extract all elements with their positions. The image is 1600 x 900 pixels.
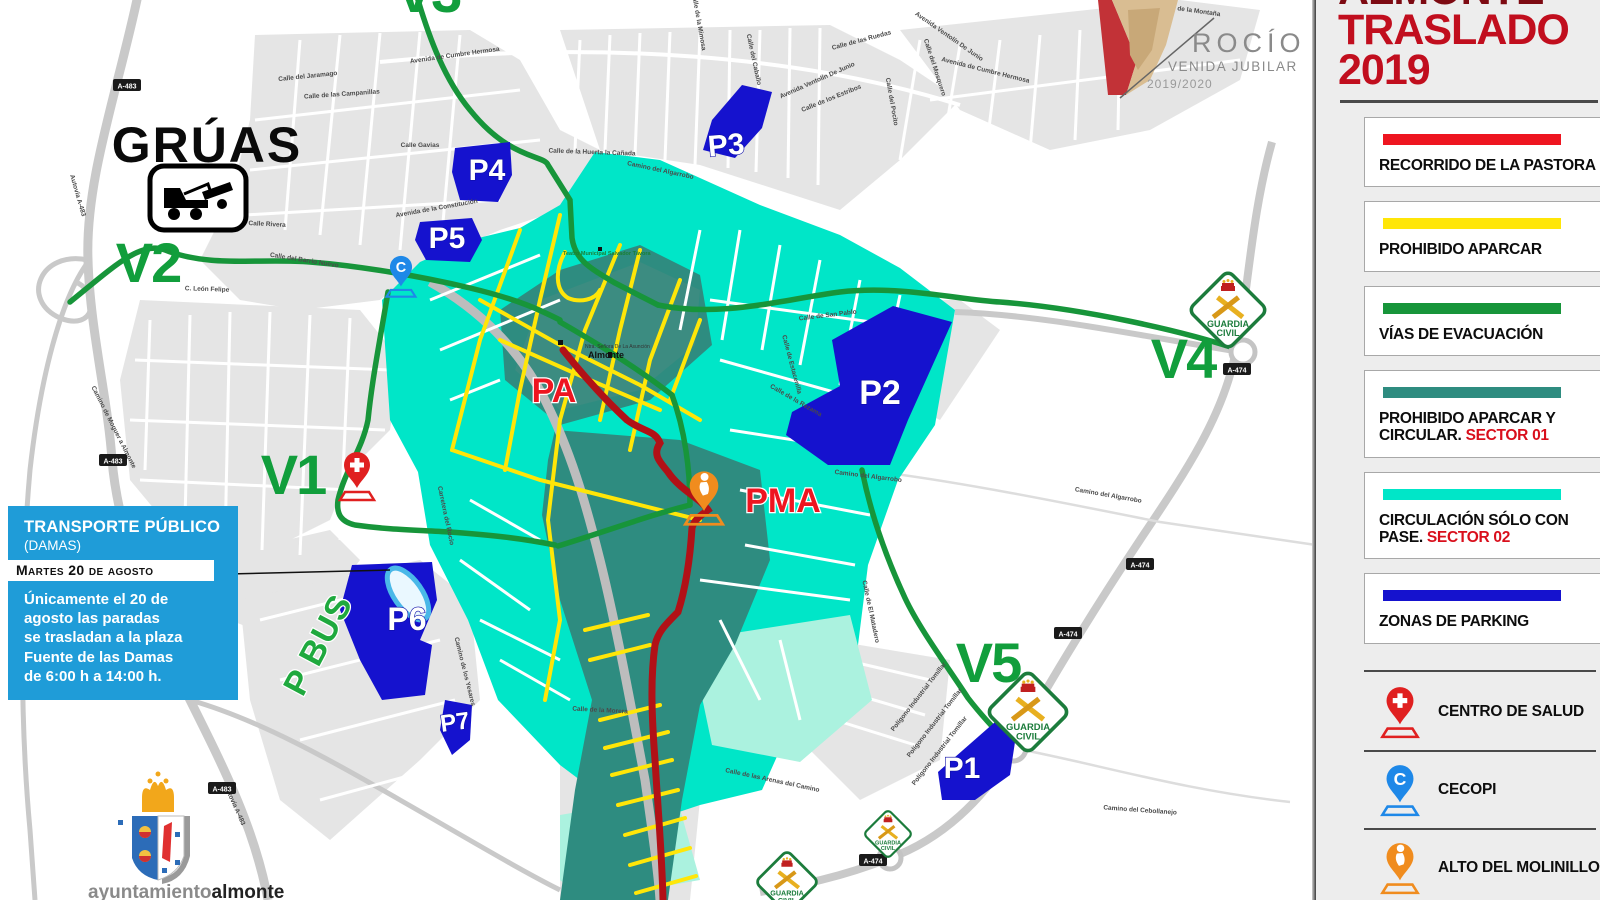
legend-panel: ALMONTE TRASLADO 2019 RECORRIDO DE LA PA… xyxy=(1316,0,1600,900)
legend-item-sector01: PROHIBIDO APARCAR Y CIRCULAR. SECTOR 01 xyxy=(1364,370,1600,458)
parking-label-p3: P3 xyxy=(706,127,745,163)
road-shield: A-483 xyxy=(208,782,236,794)
legend-label: ZONAS DE PARKING xyxy=(1379,613,1600,630)
title-rule xyxy=(1340,100,1598,103)
parking-label-p6: P6 xyxy=(387,601,426,637)
svg-text:A-474: A-474 xyxy=(1130,563,1149,570)
tow-truck-icon xyxy=(150,166,246,230)
marker-row-cecopi: CECOPI xyxy=(1378,752,1600,828)
svg-text:A-483: A-483 xyxy=(103,459,122,466)
legend-item-evacuacion: VÍAS DE EVACUACIÓN xyxy=(1364,286,1600,356)
legend-item-prohibido-aparcar: PROHIBIDO APARCAR xyxy=(1364,201,1600,271)
parking-label-p5: P5 xyxy=(429,222,466,255)
swatch-evacuacion xyxy=(1383,303,1561,314)
street-label: Calle Gavias xyxy=(401,142,440,149)
cecopi-pin-icon xyxy=(1378,761,1422,819)
legend-item-parking: ZONAS DE PARKING xyxy=(1364,573,1600,643)
legend-separator xyxy=(1364,670,1596,672)
transport-subtitle: (DAMAS) xyxy=(24,538,224,553)
poster-title: ALMONTE TRASLADO 2019 xyxy=(1338,0,1600,90)
rocio-title: ROCÍO xyxy=(1192,28,1306,58)
legend-label: RECORRIDO DE LA PASTORA xyxy=(1379,157,1600,174)
road-shield: A-483 xyxy=(113,79,141,91)
legend-item-recorrido: RECORRIDO DE LA PASTORA xyxy=(1364,117,1600,187)
swatch-recorrido xyxy=(1383,134,1561,145)
svg-text:A-474: A-474 xyxy=(863,859,882,866)
road-shield: A-474 xyxy=(1223,363,1251,375)
rocio-season: 2019/2020 xyxy=(1147,77,1213,91)
road-shield: A-483 xyxy=(99,454,127,466)
transport-title: TRANSPORTE PÚBLICO xyxy=(24,518,224,537)
road-shield: A-474 xyxy=(1126,558,1154,570)
marker-row-salud: CENTRO DE SALUD xyxy=(1378,674,1600,750)
health-pin-icon xyxy=(1378,683,1422,741)
route-label-v4: V4 xyxy=(1151,327,1217,390)
parking-label-p1: P1 xyxy=(944,752,981,785)
marker-label-cecopi: CECOPI xyxy=(1438,781,1496,799)
legend-label: VÍAS DE EVACUACIÓN xyxy=(1379,326,1600,343)
pa-label: PA xyxy=(532,372,577,410)
route-label-v2: V2 xyxy=(116,231,181,294)
theatre-label: Teatro Municipal Salvador Távora xyxy=(563,251,652,257)
ayuntamiento-wordmark: ayuntamientoalmonte xyxy=(88,882,284,900)
town-label: Almonte xyxy=(588,350,624,360)
legend-label: CIRCULACIÓN SÓLO CON PASE. SECTOR 02 xyxy=(1379,512,1600,547)
svg-text:A-483: A-483 xyxy=(212,787,231,794)
molinillo-pin-icon xyxy=(1378,839,1422,897)
legend-item-sector02: CIRCULACIÓN SÓLO CON PASE. SECTOR 02 xyxy=(1364,472,1600,560)
map-area: C GUARDIA CIVIL xyxy=(0,0,1316,900)
swatch-sector01 xyxy=(1383,387,1561,398)
swatch-sector02 xyxy=(1383,489,1561,500)
road-shield: A-474 xyxy=(1054,627,1082,639)
swatch-prohibido xyxy=(1383,218,1561,229)
transport-notice: TRANSPORTE PÚBLICO (DAMAS) Martes 20 de … xyxy=(8,506,238,700)
svg-text:A-483: A-483 xyxy=(117,84,136,91)
rocio-subtitle: VENIDA JUBILAR xyxy=(1168,59,1298,74)
road-shield: A-474 xyxy=(859,854,887,866)
marker-label-molinillo: ALTO DEL MOLINILLO xyxy=(1438,859,1600,877)
svg-text:A-474: A-474 xyxy=(1058,632,1077,639)
route-label-v3: V3 xyxy=(396,0,461,24)
marker-label-salud: CENTRO DE SALUD xyxy=(1438,703,1584,721)
svg-text:A-474: A-474 xyxy=(1227,368,1246,375)
legend-label: PROHIBIDO APARCAR Y CIRCULAR. SECTOR 01 xyxy=(1379,410,1600,445)
marker-row-molinillo: ALTO DEL MOLINILLO xyxy=(1378,830,1600,900)
poster: C GUARDIA CIVIL xyxy=(0,0,1600,900)
transport-body: Únicamente el 20 de agosto las paradas s… xyxy=(24,590,224,686)
swatch-parking xyxy=(1383,590,1561,601)
title-line-2: TRASLADO xyxy=(1338,10,1600,50)
transport-date: Martes 20 de agosto xyxy=(8,560,214,581)
parking-label-p2: P2 xyxy=(859,374,901,412)
title-line-3: 2019 xyxy=(1338,50,1600,90)
map-canvas: C GUARDIA CIVIL xyxy=(0,0,1316,900)
legend-label: PROHIBIDO APARCAR xyxy=(1379,241,1600,258)
route-label-v1: V1 xyxy=(261,443,326,506)
parking-label-p7: P7 xyxy=(439,707,472,738)
parking-label-p4: P4 xyxy=(469,154,506,187)
pma-label: PMA xyxy=(745,482,821,520)
